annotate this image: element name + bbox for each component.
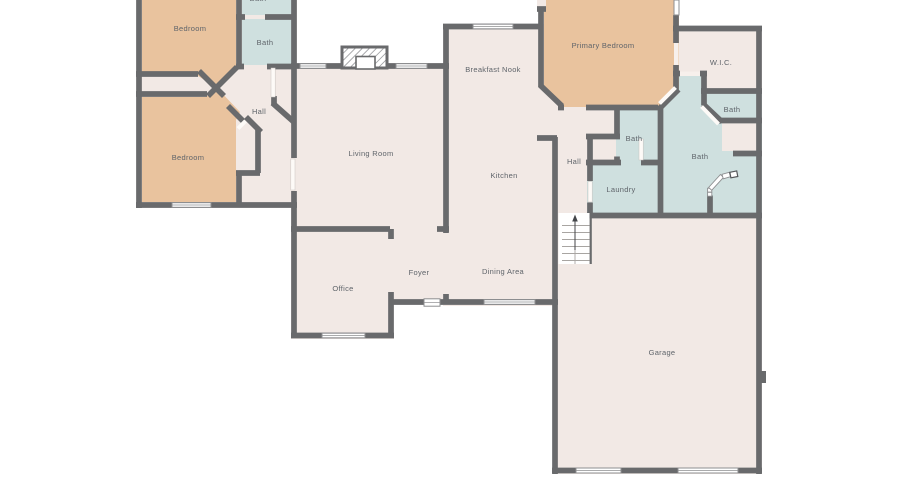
svg-text:Bath: Bath <box>692 152 709 161</box>
svg-text:Primary Bedroom: Primary Bedroom <box>572 41 635 50</box>
svg-text:Dining Area: Dining Area <box>482 267 525 276</box>
svg-text:Breakfast Nook: Breakfast Nook <box>465 65 520 74</box>
svg-text:Hall: Hall <box>252 107 266 116</box>
svg-text:Bath: Bath <box>250 0 267 3</box>
svg-text:Living Room: Living Room <box>349 149 394 158</box>
svg-text:Laundry: Laundry <box>606 185 635 194</box>
svg-text:Kitchen: Kitchen <box>490 171 517 180</box>
svg-text:Bedroom: Bedroom <box>174 24 207 33</box>
svg-text:Bath: Bath <box>724 105 741 114</box>
svg-text:Hall: Hall <box>567 157 581 166</box>
svg-text:W.I.C.: W.I.C. <box>710 58 732 67</box>
svg-text:Garage: Garage <box>649 348 676 357</box>
svg-text:Bedroom: Bedroom <box>172 153 205 162</box>
svg-text:Foyer: Foyer <box>409 268 430 277</box>
svg-text:Bath: Bath <box>257 38 274 47</box>
svg-text:Bath: Bath <box>626 134 643 143</box>
svg-text:Office: Office <box>332 284 353 293</box>
